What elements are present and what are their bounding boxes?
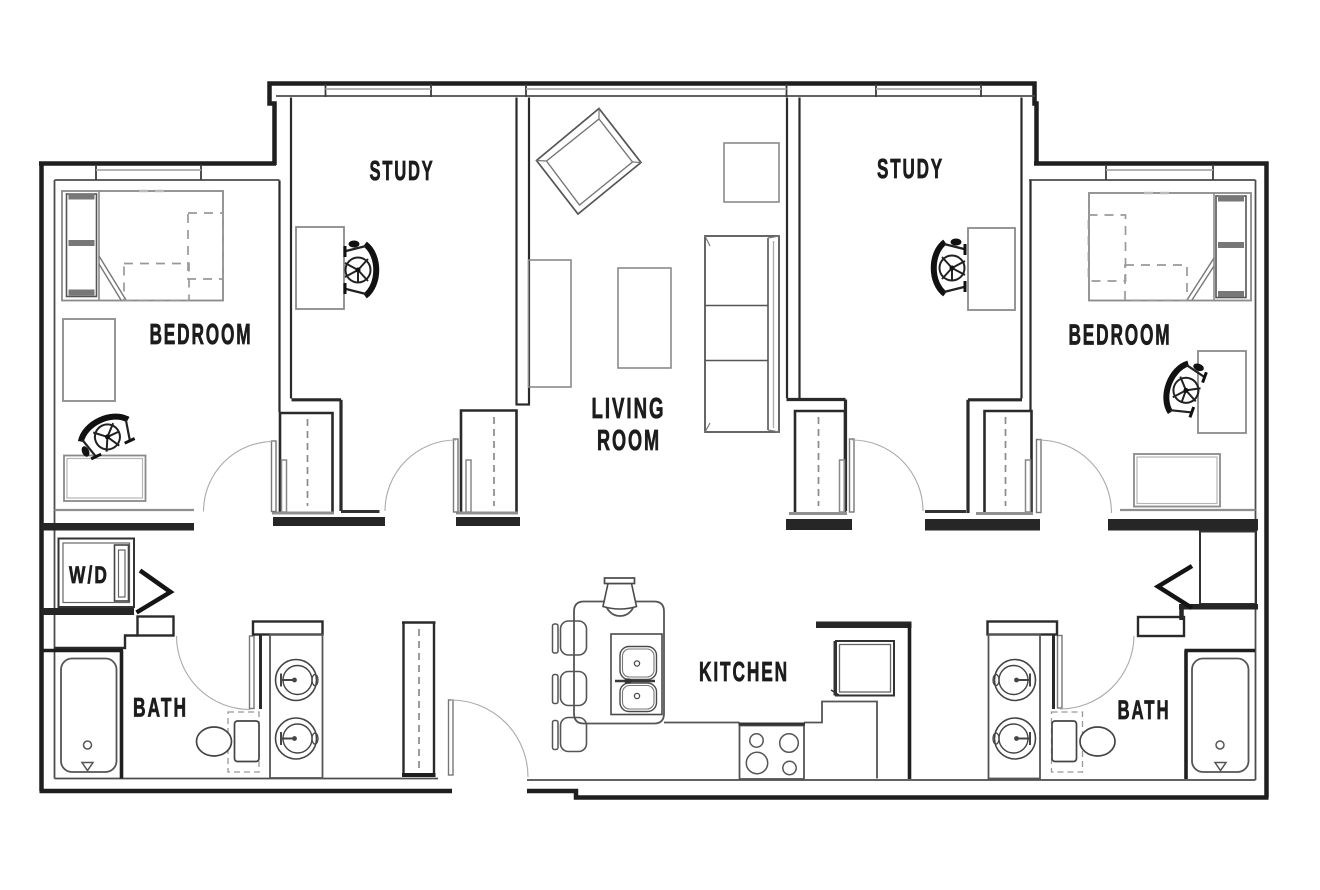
svg-text:BEDROOM: BEDROOM — [150, 319, 253, 351]
svg-text:LIVING: LIVING — [592, 393, 666, 425]
svg-text:STUDY: STUDY — [877, 153, 944, 184]
svg-text:KITCHEN: KITCHEN — [699, 656, 789, 687]
svg-text:ROOM: ROOM — [597, 425, 661, 457]
svg-text:W/D: W/D — [69, 562, 109, 589]
svg-text:STUDY: STUDY — [370, 155, 435, 186]
svg-text:BATH: BATH — [133, 693, 188, 723]
svg-text:BEDROOM: BEDROOM — [1069, 320, 1172, 352]
svg-text:BATH: BATH — [1118, 695, 1171, 725]
